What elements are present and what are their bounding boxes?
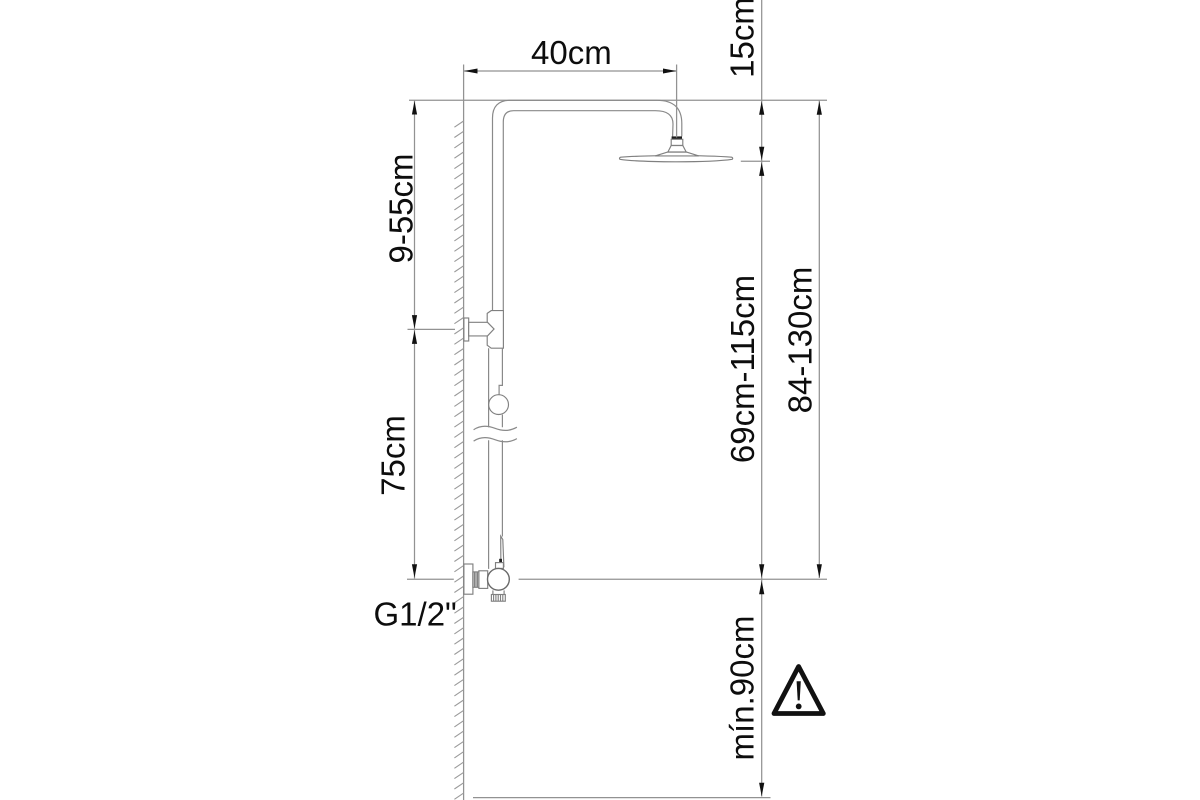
svg-text:84-130cm: 84-130cm: [782, 267, 819, 414]
svg-text:40cm: 40cm: [531, 34, 612, 71]
svg-text:69cm-115cm: 69cm-115cm: [724, 275, 761, 463]
svg-text:75cm: 75cm: [375, 415, 412, 496]
svg-text:G1/2": G1/2": [374, 595, 457, 632]
svg-text:mín.90cm: mín.90cm: [724, 616, 761, 761]
svg-text:9-55cm: 9-55cm: [383, 153, 420, 263]
svg-text:15cm: 15cm: [724, 0, 761, 78]
